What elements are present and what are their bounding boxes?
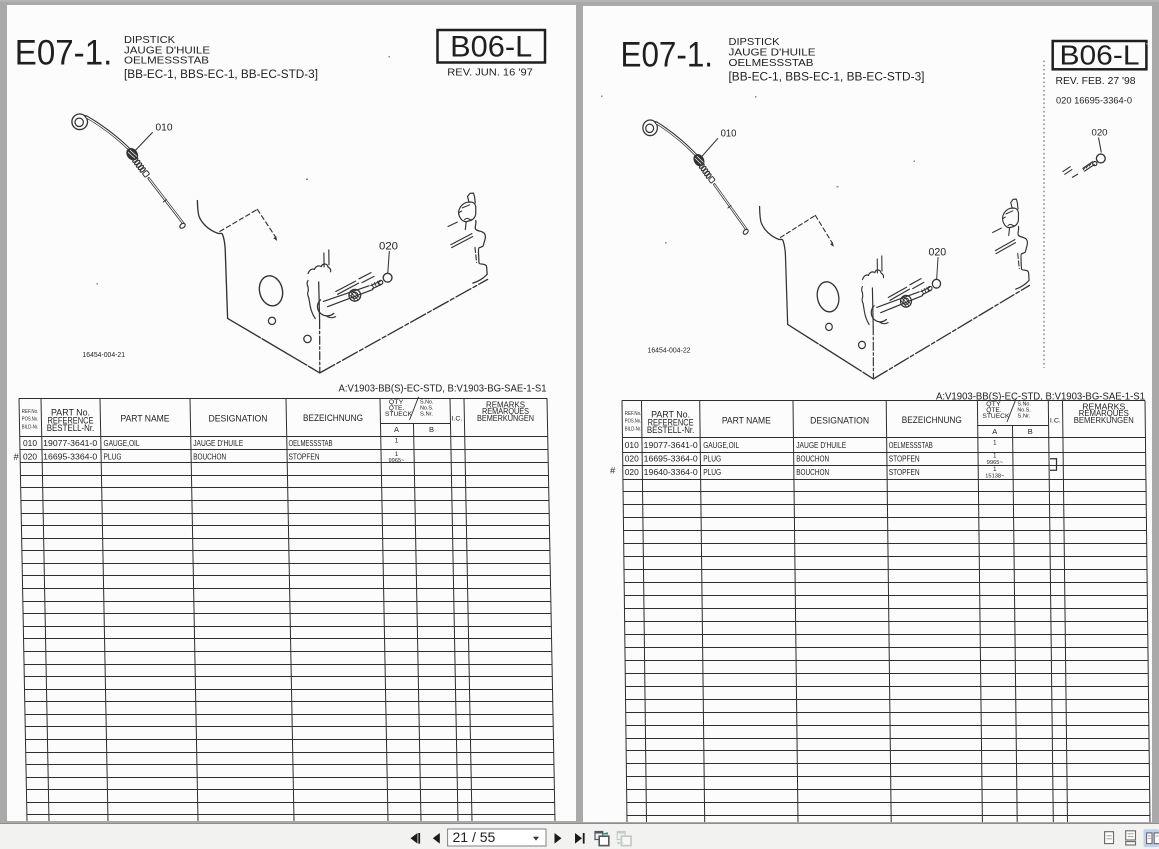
svg-text:No.S.: No.S. — [1017, 408, 1031, 414]
svg-text:B: B — [429, 425, 434, 434]
svg-text:15138~: 15138~ — [985, 473, 1004, 479]
svg-text:POS.No.: POS.No. — [625, 419, 642, 425]
svg-text:JAUGE D'HUILE: JAUGE D'HUILE — [193, 439, 243, 448]
svg-text:#: # — [14, 452, 20, 463]
svg-text:REF.No.: REF.No. — [625, 411, 642, 417]
svg-text:B06-L: B06-L — [450, 31, 532, 64]
svg-text:020: 020 — [23, 452, 38, 461]
svg-text:GAUGE,OIL: GAUGE,OIL — [703, 441, 739, 450]
svg-text:PLUG: PLUG — [104, 452, 122, 461]
svg-text:E07-1.: E07-1. — [621, 36, 714, 75]
svg-text:020: 020 — [625, 455, 640, 464]
svg-text:21 / 55: 21 / 55 — [453, 829, 496, 845]
svg-text:19640-3364-0: 19640-3364-0 — [644, 467, 698, 477]
svg-text:BEZEICHNUNG: BEZEICHNUNG — [303, 413, 363, 424]
svg-text:PLUG: PLUG — [703, 455, 721, 464]
svg-text:REV. JUN. 16 '97: REV. JUN. 16 '97 — [447, 67, 533, 79]
svg-text:B: B — [1028, 427, 1033, 436]
svg-text:B06-L: B06-L — [1060, 39, 1140, 70]
svg-text:S.Nr.: S.Nr. — [1017, 414, 1030, 420]
svg-text:BESTELL-Nr.: BESTELL-Nr. — [647, 425, 695, 435]
svg-text:STUECK: STUECK — [385, 411, 412, 418]
svg-text:S.Nr.: S.Nr. — [420, 412, 433, 418]
svg-text:16454-004-22: 16454-004-22 — [648, 348, 691, 355]
svg-text:9965~: 9965~ — [389, 458, 405, 464]
svg-text:9965~: 9965~ — [987, 460, 1003, 466]
svg-text:STOPFEN: STOPFEN — [289, 452, 320, 461]
svg-text:GAUGE,OIL: GAUGE,OIL — [104, 439, 140, 448]
svg-text:DESIGNATION: DESIGNATION — [810, 416, 869, 427]
svg-text:A: A — [394, 425, 399, 434]
svg-text:PART NAME: PART NAME — [722, 416, 771, 427]
svg-text:1: 1 — [993, 440, 997, 447]
svg-text:16454-004-21: 16454-004-21 — [83, 352, 126, 359]
svg-text:BEMERKUNGEN: BEMERKUNGEN — [1074, 416, 1134, 425]
svg-text:16695-3364-0: 16695-3364-0 — [43, 451, 97, 461]
svg-text:OELMESSSTAB: OELMESSSTAB — [729, 57, 814, 69]
svg-text:1: 1 — [395, 438, 399, 445]
svg-text:#: # — [610, 466, 616, 477]
svg-text:PART NAME: PART NAME — [121, 414, 170, 425]
svg-text:POS.No.: POS.No. — [22, 417, 39, 423]
svg-text:STOPFEN: STOPFEN — [889, 468, 920, 477]
svg-text:010: 010 — [23, 439, 38, 448]
svg-text:E07-1.: E07-1. — [15, 34, 113, 73]
svg-text:STOPFEN: STOPFEN — [889, 455, 920, 464]
svg-text:BILD-Nr.: BILD-Nr. — [22, 424, 39, 430]
svg-text:BOUCHON: BOUCHON — [796, 468, 829, 477]
svg-text:[BB-EC-1, BBS-EC-1, BB-EC-STD-: [BB-EC-1, BBS-EC-1, BB-EC-STD-3] — [729, 72, 925, 84]
svg-text:STUECK: STUECK — [982, 413, 1009, 420]
svg-text:BEMERKUNGEN: BEMERKUNGEN — [477, 414, 534, 423]
svg-text:020: 020 — [379, 241, 398, 253]
svg-text:I.C.: I.C. — [452, 416, 463, 423]
svg-text:BOUCHON: BOUCHON — [193, 452, 226, 461]
svg-text:No.S.: No.S. — [420, 406, 434, 412]
svg-text:REF.No.: REF.No. — [22, 409, 39, 415]
svg-text:BESTELL-Nr.: BESTELL-Nr. — [47, 423, 95, 433]
svg-text:JAUGE D'HUILE: JAUGE D'HUILE — [796, 441, 846, 450]
svg-text:A:V1903-BB(S)-EC-STD, B:V1903: A:V1903-BB(S)-EC-STD, B:V1903-BG-SAE-1-S… — [339, 383, 547, 395]
svg-text:OELMESSSTAB: OELMESSSTAB — [124, 55, 209, 67]
svg-text:020 16695-3364-0: 020 16695-3364-0 — [1056, 96, 1132, 107]
svg-text:19077-3641-0: 19077-3641-0 — [644, 440, 698, 450]
svg-text:010: 010 — [156, 122, 173, 134]
svg-text:OELMESSSTAB: OELMESSSTAB — [289, 439, 333, 448]
svg-text:020: 020 — [1092, 128, 1108, 139]
svg-text:OELMESSSTAB: OELMESSSTAB — [889, 441, 933, 450]
svg-text:16695-3364-0: 16695-3364-0 — [644, 454, 698, 464]
svg-text:PLUG: PLUG — [703, 468, 721, 477]
svg-text:BEZEICHNUNG: BEZEICHNUNG — [902, 415, 962, 426]
svg-text:19077-3641-0: 19077-3641-0 — [43, 438, 97, 448]
svg-text:REV. FEB. 27 '98: REV. FEB. 27 '98 — [1056, 75, 1136, 87]
svg-text:DESIGNATION: DESIGNATION — [209, 414, 268, 425]
svg-text:020: 020 — [625, 468, 640, 477]
svg-text:BILD-Nr.: BILD-Nr. — [625, 426, 642, 432]
svg-text:[BB-EC-1, BBS-EC-1, BB-EC-STD-: [BB-EC-1, BBS-EC-1, BB-EC-STD-3] — [124, 69, 318, 81]
svg-text:I.C.: I.C. — [1050, 418, 1061, 425]
svg-text:BOUCHON: BOUCHON — [796, 455, 829, 464]
svg-text:010: 010 — [625, 441, 640, 450]
svg-text:A: A — [992, 427, 997, 436]
